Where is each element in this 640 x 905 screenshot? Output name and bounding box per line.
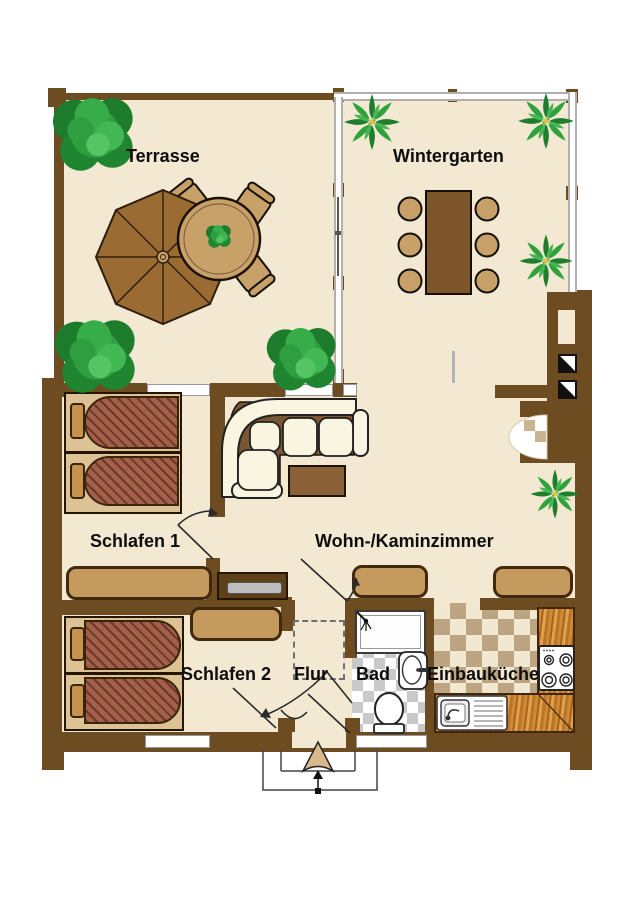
tv-cabinet xyxy=(217,572,288,600)
room-label-flur: Flur xyxy=(294,664,328,685)
window xyxy=(356,735,427,748)
blanket xyxy=(84,677,181,724)
wintergarten-right-glass-wall xyxy=(568,92,577,292)
blanket xyxy=(84,396,179,449)
wall xyxy=(575,290,592,770)
wall xyxy=(42,600,210,615)
chimney-notch xyxy=(558,310,575,344)
room-label-terrasse: Terrasse xyxy=(126,146,200,167)
fireplace-hearth-top xyxy=(520,401,547,417)
wall xyxy=(345,598,434,610)
pillow xyxy=(70,684,85,718)
window xyxy=(145,735,210,748)
room-label-bad: Bad xyxy=(356,664,390,685)
bed xyxy=(66,394,180,451)
kitchen-counter xyxy=(434,693,575,733)
wintergarten-top-glass-wall xyxy=(334,92,577,101)
wall xyxy=(54,93,64,383)
sideboard-bench xyxy=(352,565,428,598)
schlafen1-double-bed xyxy=(64,392,182,514)
shower-tray xyxy=(360,615,421,649)
sideboard-bench xyxy=(493,566,573,598)
shower xyxy=(355,610,426,654)
schlafen2-dresser xyxy=(190,607,282,641)
fireplace-arm xyxy=(495,385,547,398)
terrace-floor xyxy=(54,93,342,397)
wall xyxy=(210,383,225,517)
glass-post-line xyxy=(452,351,455,383)
bed xyxy=(66,451,180,508)
wall xyxy=(570,732,592,770)
pillow xyxy=(70,403,85,439)
window xyxy=(285,384,333,396)
floor-plan: Terrasse Wintergarten Schlafen 1 Wohn-/K… xyxy=(0,0,640,905)
room-label-wohnzimmer: Wohn-/Kaminzimmer xyxy=(315,531,494,552)
sliding-door-tick xyxy=(335,231,341,235)
bed xyxy=(66,672,182,726)
sliding-door-track xyxy=(337,197,339,276)
schlafen2-double-bed xyxy=(64,616,184,731)
tv-screen xyxy=(227,582,282,594)
entrance-opening xyxy=(292,732,346,748)
entrance-jamb xyxy=(278,718,292,750)
room-label-schlafen1: Schlafen 1 xyxy=(90,531,180,552)
fireplace-hearth-bottom xyxy=(520,449,592,463)
pillow xyxy=(70,463,85,499)
wall xyxy=(42,732,64,770)
room-label-einbaukueche: Einbauküche xyxy=(427,664,539,685)
blanket xyxy=(84,620,181,670)
schlafen1-sideboard xyxy=(66,566,212,600)
room-label-schlafen2: Schlafen 2 xyxy=(181,664,271,685)
wall xyxy=(54,93,342,100)
bed xyxy=(66,618,182,672)
dining-table xyxy=(425,190,472,295)
kitchen-counter xyxy=(537,607,575,695)
blanket xyxy=(84,456,179,506)
pillow xyxy=(70,627,85,661)
room-label-wintergarten: Wintergarten xyxy=(393,146,504,167)
window xyxy=(343,384,357,396)
coffee-table xyxy=(288,465,346,497)
wall xyxy=(42,378,62,755)
